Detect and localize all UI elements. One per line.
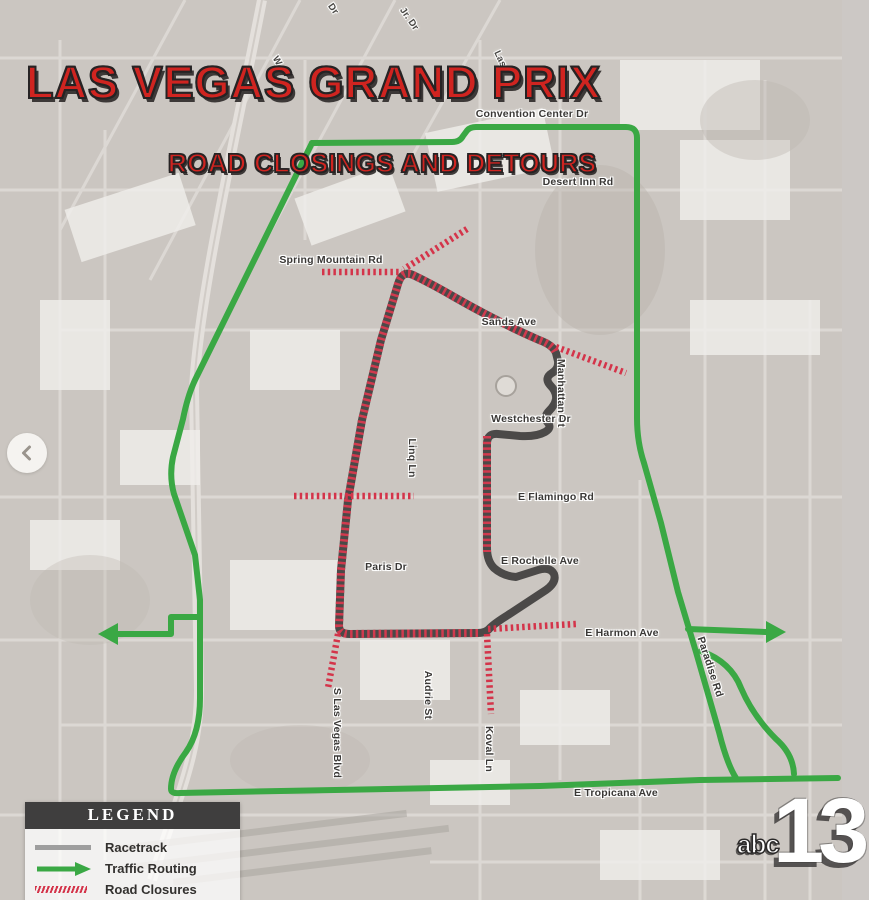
road-label-paris: Paris Dr [365,561,407,573]
road-label-convention-center: Convention Center Dr [476,108,589,120]
traffic-route-harmon-east-branch [688,629,766,632]
page-title: LAS VEGAS GRAND PRIX [26,57,601,109]
carousel-prev-button[interactable] [7,433,47,473]
road-label-las-vegas-blvd: S Las Vegas Blvd [331,688,343,778]
legend-label-traffic-routing: Traffic Routing [105,861,197,876]
map-svg [0,0,842,900]
legend-label-road-closures: Road Closures [105,882,197,897]
legend-row-traffic-routing: Traffic Routing [35,858,230,879]
racetrack-swatch-icon [35,845,91,850]
legend-body: Racetrack Traffic Routing Road Closures [25,829,240,900]
road-label-linq: Linq Ln [406,438,418,477]
traffic-routing-arrow-icon [35,861,91,877]
legend: LEGEND Racetrack Traffic Routing Road Cl… [25,802,240,900]
road-label-spring-mountain: Spring Mountain Rd [279,254,382,266]
legend-row-racetrack: Racetrack [35,837,230,858]
screenshot-stage: Convention Center Dr Desert Inn Rd Sprin… [0,0,869,900]
legend-row-road-closures: Road Closures [35,879,230,900]
map-canvas [0,0,842,900]
road-closures-swatch-icon [35,886,87,893]
chevron-left-icon [16,442,38,464]
road-label-flamingo: E Flamingo Rd [518,491,594,503]
road-label-harmon: E Harmon Ave [585,627,658,639]
page-subtitle: ROAD CLOSINGS AND DETOURS [168,148,597,179]
station-logo: abc 13 [733,793,865,897]
road-label-sands: Sands Ave [482,316,537,328]
image-gutter [842,0,869,900]
road-label-koval: Koval Ln [483,726,495,772]
road-label-rochelle: E Rochelle Ave [501,555,579,567]
legend-header: LEGEND [25,802,240,829]
legend-label-racetrack: Racetrack [105,840,167,855]
road-label-audrie: Audrie St [422,671,434,719]
road-label-westchester: Westchester Dr [491,413,571,425]
satellite-basemap [0,0,842,900]
road-label-tropicana: E Tropicana Ave [574,787,658,799]
channel-number: 13 [773,779,863,884]
